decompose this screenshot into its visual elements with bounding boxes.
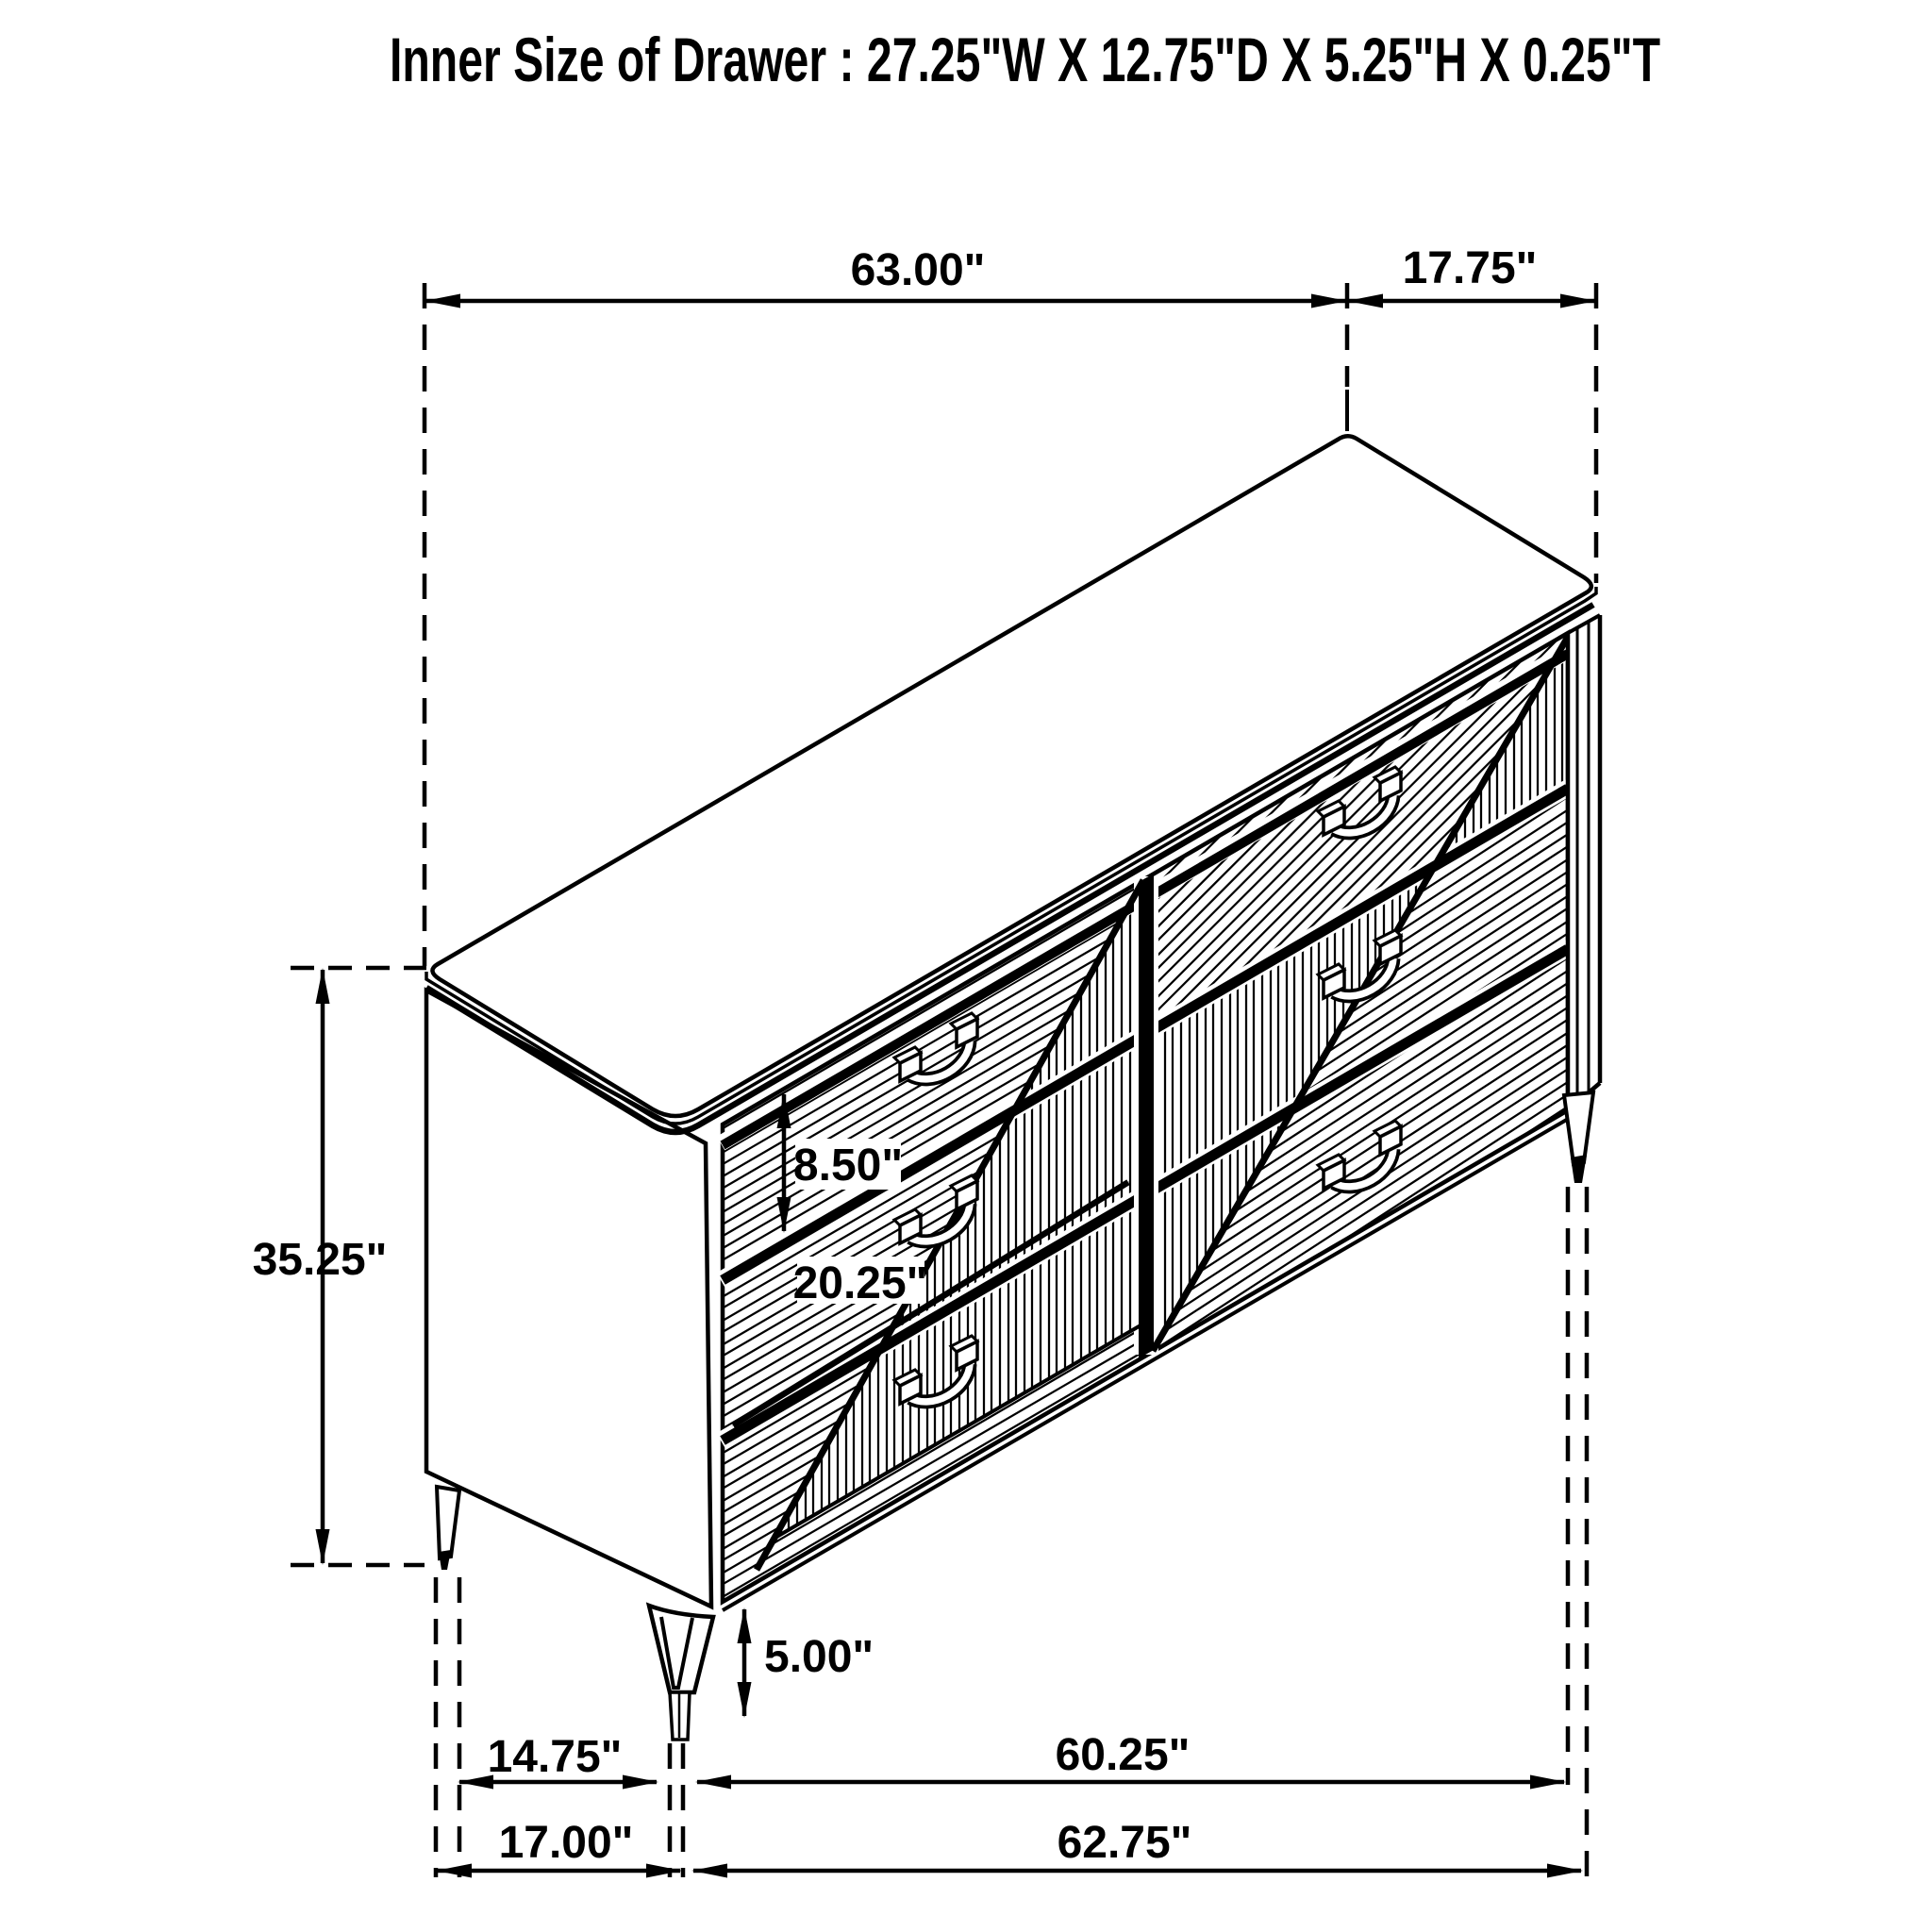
svg-text:62.75": 62.75" <box>1058 1818 1192 1868</box>
svg-text:60.25": 60.25" <box>1056 1730 1191 1780</box>
svg-text:35.25": 35.25" <box>253 1235 388 1285</box>
svg-text:8.50": 8.50" <box>793 1141 903 1191</box>
svg-text:Inner Size of Drawer : 27.25"W: Inner Size of Drawer : 27.25"W X 12.75"D… <box>390 25 1660 94</box>
svg-text:5.00": 5.00" <box>764 1632 874 1682</box>
svg-text:17.00": 17.00" <box>499 1818 634 1868</box>
svg-text:20.25": 20.25" <box>793 1258 928 1308</box>
svg-text:17.75": 17.75" <box>1403 243 1538 293</box>
svg-text:14.75": 14.75" <box>488 1732 623 1782</box>
svg-text:63.00": 63.00" <box>851 245 986 295</box>
